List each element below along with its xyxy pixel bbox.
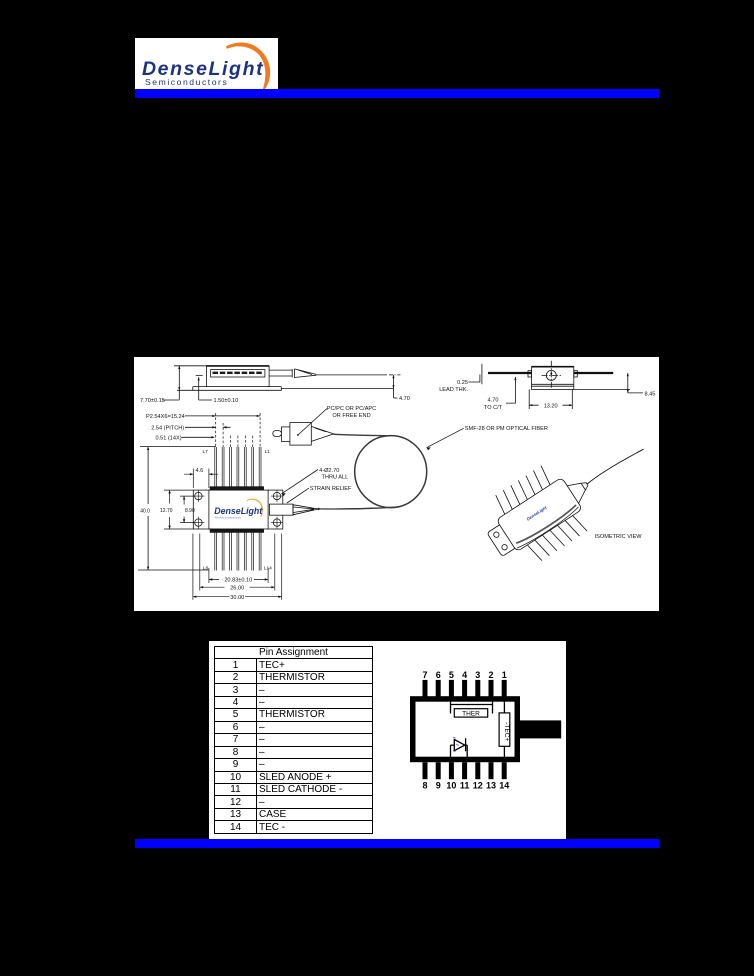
svg-text:12.70: 12.70 [160,508,173,514]
svg-text:4-Ø2.70: 4-Ø2.70 [319,468,339,474]
svg-text:0.25: 0.25 [457,380,468,386]
svg-text:13: 13 [486,781,496,791]
svg-text:30.00: 30.00 [230,595,244,601]
svg-text:40.0: 40.0 [140,508,150,514]
svg-text:26.00: 26.00 [230,585,244,591]
svg-text:L8: L8 [203,566,209,572]
svg-text:THER: THER [462,711,480,718]
svg-text:LEAD THK.: LEAD THK. [439,387,468,393]
svg-text:THRU ALL: THRU ALL [322,475,349,481]
svg-text:0.51 (14X): 0.51 (14X) [156,435,182,441]
svg-text:8.90: 8.90 [185,508,195,514]
svg-text:2: 2 [488,670,493,680]
svg-text:-TEC+: -TEC+ [503,722,510,741]
svg-text:9: 9 [436,781,441,791]
svg-text:Semiconductors: Semiconductors [145,77,228,87]
svg-text:L7: L7 [202,449,208,455]
svg-text:8: 8 [422,781,427,791]
svg-text:1: 1 [502,670,507,680]
svg-text:6: 6 [436,670,441,680]
svg-text:8.45: 8.45 [645,391,656,397]
svg-text:14: 14 [499,781,509,791]
svg-text:7.70±0.15: 7.70±0.15 [140,398,165,404]
svg-text:11: 11 [460,781,470,791]
svg-text:2.54 (PITCH): 2.54 (PITCH) [151,425,184,431]
svg-text:7: 7 [422,670,427,680]
svg-text:5: 5 [449,670,454,680]
svg-text:4.70: 4.70 [399,396,410,402]
svg-text:L1: L1 [265,449,271,455]
svg-text:ISOMETRIC VIEW: ISOMETRIC VIEW [595,534,643,540]
svg-text:PC/PC OR PC/APC: PC/PC OR PC/APC [327,406,376,412]
svg-text:SMF-28 OR PM OPTICAL FIBER: SMF-28 OR PM OPTICAL FIBER [465,426,548,432]
svg-text:20.83±0.10: 20.83±0.10 [224,578,252,584]
svg-text:12: 12 [473,781,483,791]
svg-text:4.6: 4.6 [196,468,204,474]
svg-text:1.50±0.10: 1.50±0.10 [214,398,239,404]
svg-text:Semiconductors: Semiconductors [215,516,242,520]
svg-text:13.20: 13.20 [544,403,558,409]
svg-text:10: 10 [446,781,456,791]
svg-text:P2.54X6=15.24: P2.54X6=15.24 [146,414,185,420]
svg-text:STRAIN RELIEF: STRAIN RELIEF [310,486,352,492]
svg-text:4: 4 [462,670,467,680]
svg-text:TO C/T: TO C/T [484,405,503,411]
svg-text:3: 3 [475,670,480,680]
svg-text:4.70: 4.70 [488,398,499,404]
svg-text:OR FREE END: OR FREE END [332,413,370,419]
